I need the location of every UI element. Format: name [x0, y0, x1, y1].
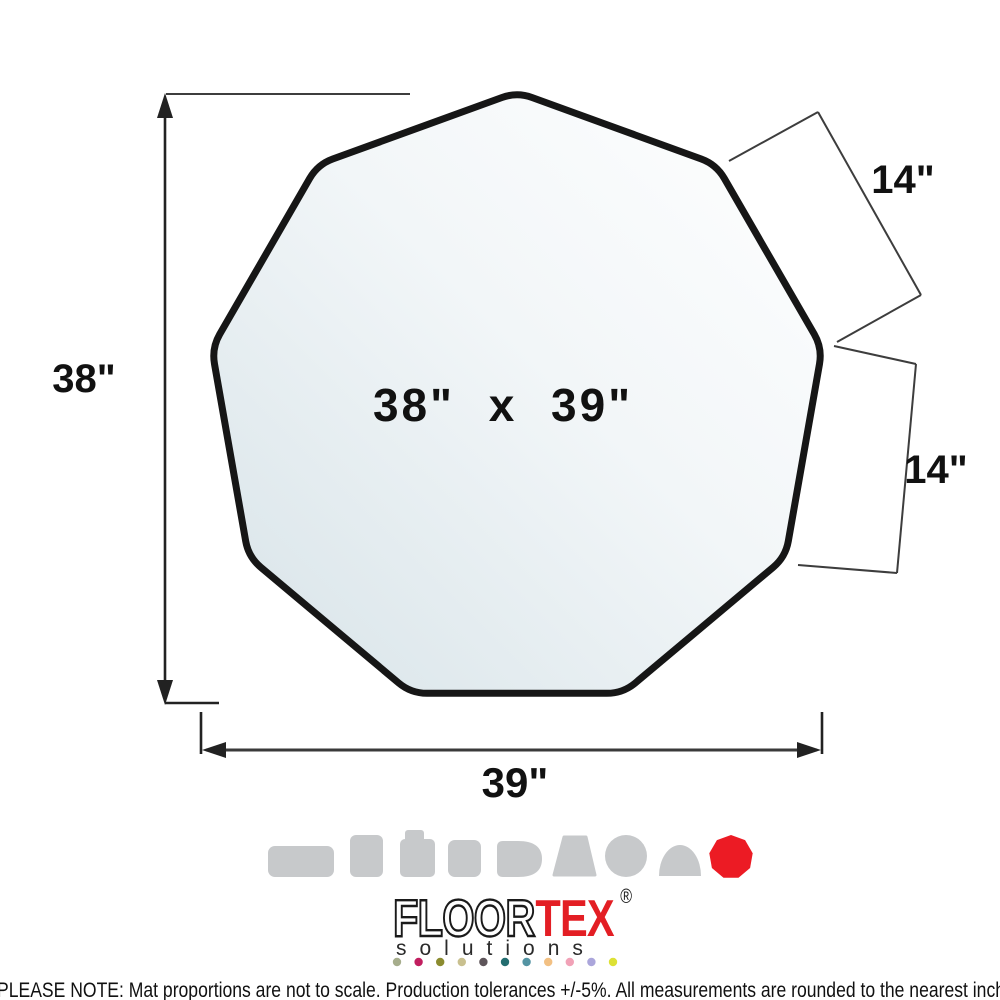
mat-shape-icon-square — [448, 840, 481, 877]
mat-shape-icon-rectangle-tall — [350, 835, 383, 877]
product-diagram-page: 38" x 39" 38" 39" 14" 14" — [0, 0, 1000, 1000]
brand-color-dot — [458, 958, 466, 966]
height-dimension-label: 38" — [52, 357, 115, 401]
brand-color-dot — [544, 958, 552, 966]
brand-color-dot — [414, 958, 422, 966]
center-dimension-label: 38" x 39" — [373, 379, 633, 431]
width-dimension-label: 39" — [482, 759, 549, 806]
edge-right-dimension-label: 14" — [904, 448, 967, 492]
mat-dimension-diagram: 38" x 39" 38" 39" 14" 14" — [0, 0, 1000, 1000]
brand-tagline: solutions — [396, 937, 596, 960]
mat-shape-icon-rectangle-wide — [268, 846, 334, 877]
workstation-lip-body — [400, 839, 435, 877]
brand-color-dot — [522, 958, 530, 966]
edge-top-dimension-label: 14" — [871, 158, 934, 202]
mat-shape-icon-circle — [605, 835, 647, 877]
brand-color-dot — [501, 958, 509, 966]
registered-mark-icon: ® — [620, 885, 632, 907]
mat-shape-icon-d-end — [497, 841, 542, 877]
brand-color-dot — [436, 958, 444, 966]
brand-color-dot — [393, 958, 401, 966]
brand-color-dot — [587, 958, 595, 966]
brand-color-dot — [566, 958, 574, 966]
footnote-text: PLEASE NOTE: Mat proportions are not to … — [0, 978, 1000, 1000]
brand-color-dot — [479, 958, 487, 966]
brand-color-dot — [609, 958, 617, 966]
